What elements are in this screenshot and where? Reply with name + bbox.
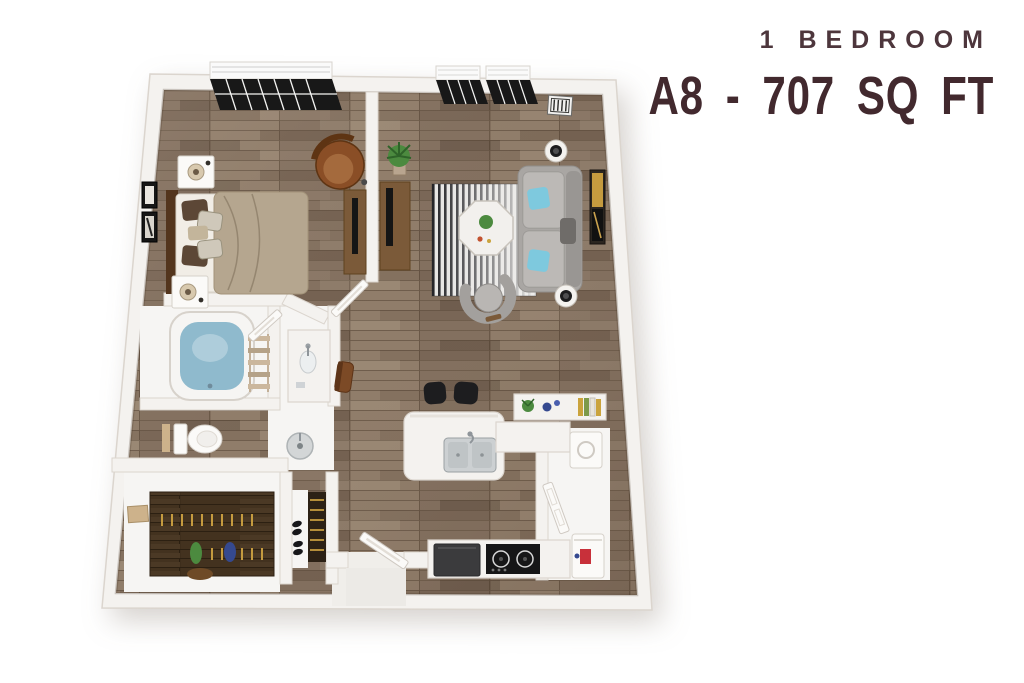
blue-bowl	[543, 403, 552, 412]
tv-screen	[386, 188, 393, 246]
plan-unit-label: A8 - 707 SQ FT	[648, 65, 994, 127]
bedroom-tv-console	[344, 190, 366, 274]
washer	[572, 534, 604, 578]
washer-label	[580, 549, 591, 564]
living-window-left	[436, 66, 488, 104]
nightstand-top	[178, 156, 214, 188]
bathtub	[170, 312, 254, 400]
bar-stool	[423, 381, 447, 405]
book	[590, 398, 595, 416]
entry-door-right-stub	[404, 552, 430, 568]
hall-stool	[334, 361, 354, 393]
bedroom-window	[210, 62, 342, 110]
side-table-top	[545, 140, 567, 162]
pillow	[188, 225, 209, 240]
living-window-right	[486, 66, 538, 104]
kitchen-cabinet	[496, 422, 570, 452]
closet-recessed-floor	[150, 492, 274, 576]
entry-door-left-stub	[326, 552, 348, 568]
tub-drain	[208, 384, 213, 389]
floor-plan-page: 1 BEDROOM A8 - 707 SQ FT	[0, 0, 1024, 683]
living-wall-art	[590, 170, 605, 244]
refrigerator	[434, 544, 480, 576]
green-vase	[190, 542, 202, 564]
pillow	[197, 239, 223, 260]
teal-pillow	[527, 186, 551, 210]
nightstand-bottom	[172, 276, 208, 308]
plan-type-label: 1 BEDROOM	[551, 26, 994, 55]
book	[596, 399, 601, 416]
toilet-tank	[174, 424, 187, 454]
side-table-bottom	[555, 285, 577, 307]
bath-closet-wall	[112, 458, 288, 472]
storage-box	[127, 505, 148, 522]
throw-blanket	[560, 218, 576, 244]
blue-bowl	[554, 400, 560, 406]
window-blinds	[210, 62, 332, 79]
blue-vase	[224, 542, 236, 562]
coat-closet	[308, 492, 326, 562]
lower-counter-run	[428, 540, 570, 578]
table-plant	[479, 215, 493, 229]
upper-counter-decor	[514, 394, 606, 420]
dryer	[570, 432, 602, 468]
peninsula-counter	[404, 412, 504, 480]
book	[584, 398, 589, 416]
vanity-counter	[288, 330, 330, 402]
living-media-console	[380, 182, 410, 270]
plan-header: 1 BEDROOM A8 - 707 SQ FT	[551, 26, 994, 127]
sofa	[518, 166, 582, 292]
basket	[187, 568, 213, 580]
teal-pillow	[527, 249, 551, 273]
coffee-table	[459, 201, 513, 255]
tv-screen	[352, 198, 358, 254]
bar-stool	[453, 381, 478, 405]
entry-threshold	[346, 568, 406, 606]
bedroom-wall-art	[142, 182, 157, 242]
duvet	[214, 192, 308, 294]
hand-towel	[162, 424, 170, 452]
bedroom-living-partition-wall	[366, 92, 378, 282]
book	[578, 398, 583, 416]
closet-east-wall	[280, 472, 292, 584]
wash-basin	[287, 433, 313, 459]
